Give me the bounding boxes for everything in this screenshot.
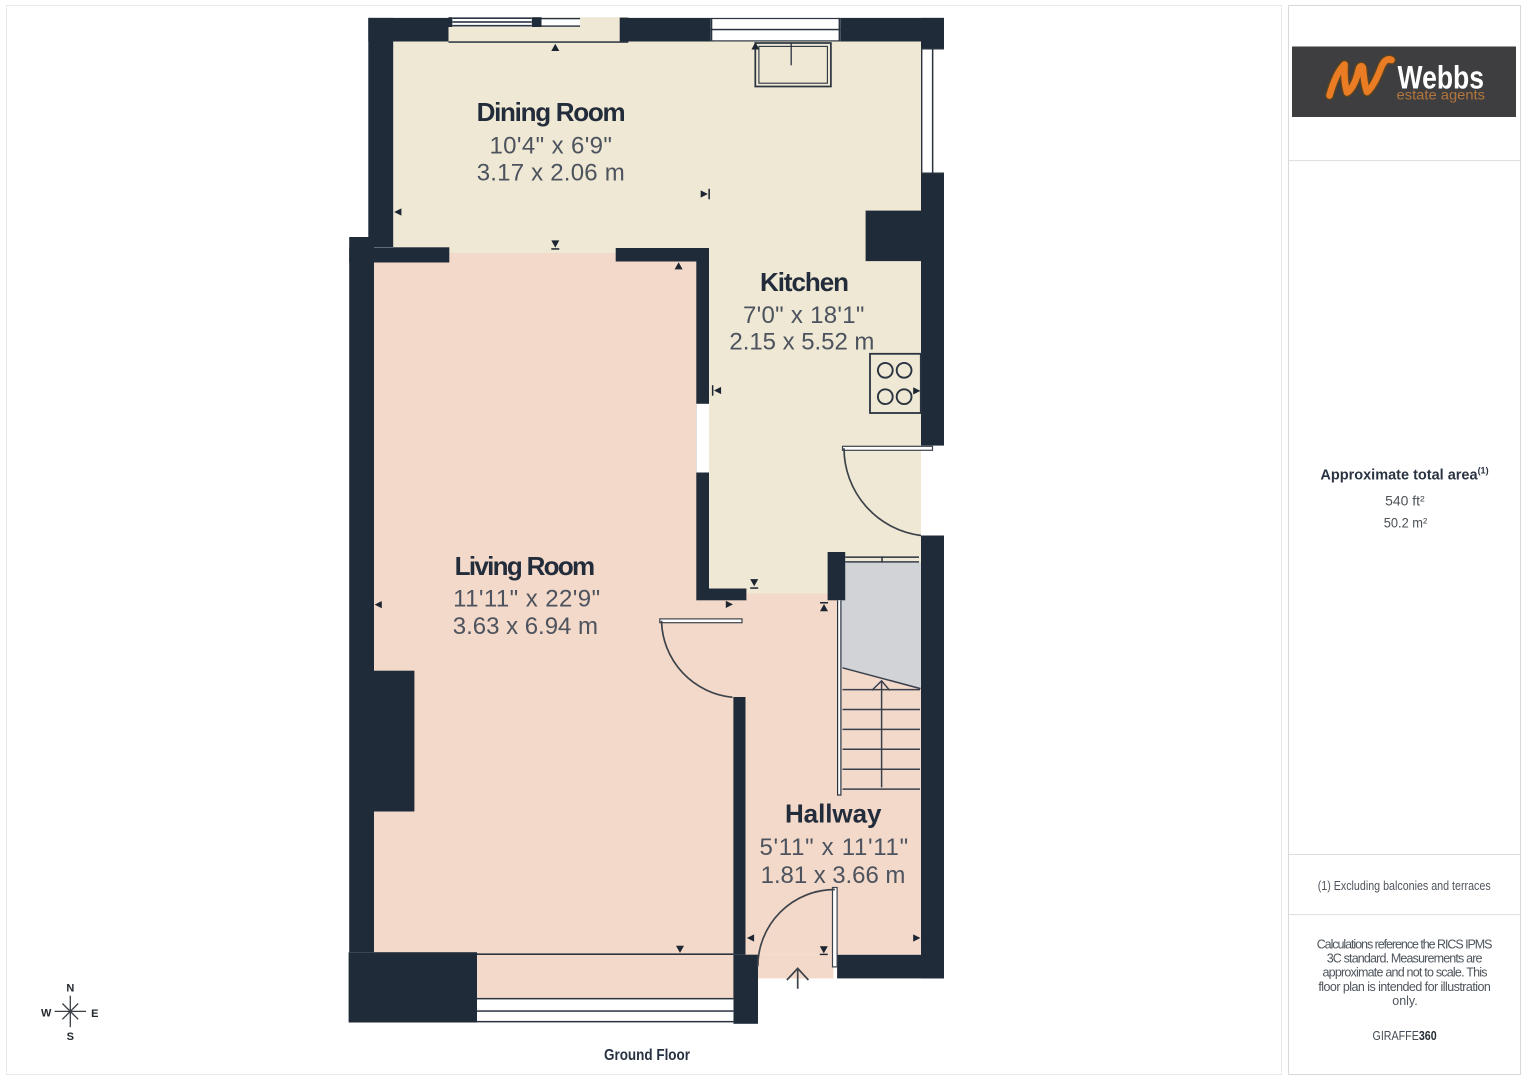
svg-text:5'11" x 11'11": 5'11" x 11'11" xyxy=(760,834,909,861)
svg-text:11'11" x 22'9": 11'11" x 22'9" xyxy=(453,585,600,612)
svg-text:3.63 x 6.94 m: 3.63 x 6.94 m xyxy=(453,613,598,640)
svg-text:2.15 x 5.52 m: 2.15 x 5.52 m xyxy=(729,329,874,356)
svg-text:1.81 x 3.66 m: 1.81 x 3.66 m xyxy=(761,862,906,889)
svg-text:N: N xyxy=(66,982,74,994)
svg-text:approximate and not to scale.: approximate and not to scale. This xyxy=(1323,966,1488,980)
svg-text:Ground Floor: Ground Floor xyxy=(604,1047,690,1064)
svg-text:Hallway: Hallway xyxy=(785,798,882,828)
svg-text:Calculations reference the RIC: Calculations reference the RICS IPMS xyxy=(1317,937,1493,951)
svg-text:10'4" x 6'9": 10'4" x 6'9" xyxy=(489,132,612,159)
svg-text:only.: only. xyxy=(1392,994,1417,1008)
svg-text:Approximate total area(1): Approximate total area(1) xyxy=(1320,465,1488,483)
svg-text:Kitchen: Kitchen xyxy=(760,267,849,297)
svg-text:(1) Excluding balconies and te: (1) Excluding balconies and terraces xyxy=(1318,879,1491,893)
svg-text:3.17 x 2.06 m: 3.17 x 2.06 m xyxy=(477,160,625,187)
svg-text:S: S xyxy=(67,1031,74,1043)
svg-text:7'0" x 18'1": 7'0" x 18'1" xyxy=(743,302,865,329)
svg-text:E: E xyxy=(91,1008,98,1020)
svg-text:floor plan is intended for ill: floor plan is intended for illustration xyxy=(1318,980,1491,994)
svg-text:W: W xyxy=(41,1007,52,1019)
svg-text:50.2 m²: 50.2 m² xyxy=(1384,514,1428,530)
svg-text:GIRAFFE360: GIRAFFE360 xyxy=(1373,1029,1437,1043)
svg-text:3C standard. Measurements are: 3C standard. Measurements are xyxy=(1327,952,1483,966)
svg-text:estate agents: estate agents xyxy=(1397,87,1486,103)
svg-text:Living Room: Living Room xyxy=(455,551,596,581)
svg-text:Dining Room: Dining Room xyxy=(477,97,626,127)
svg-text:540 ft²: 540 ft² xyxy=(1385,492,1425,508)
